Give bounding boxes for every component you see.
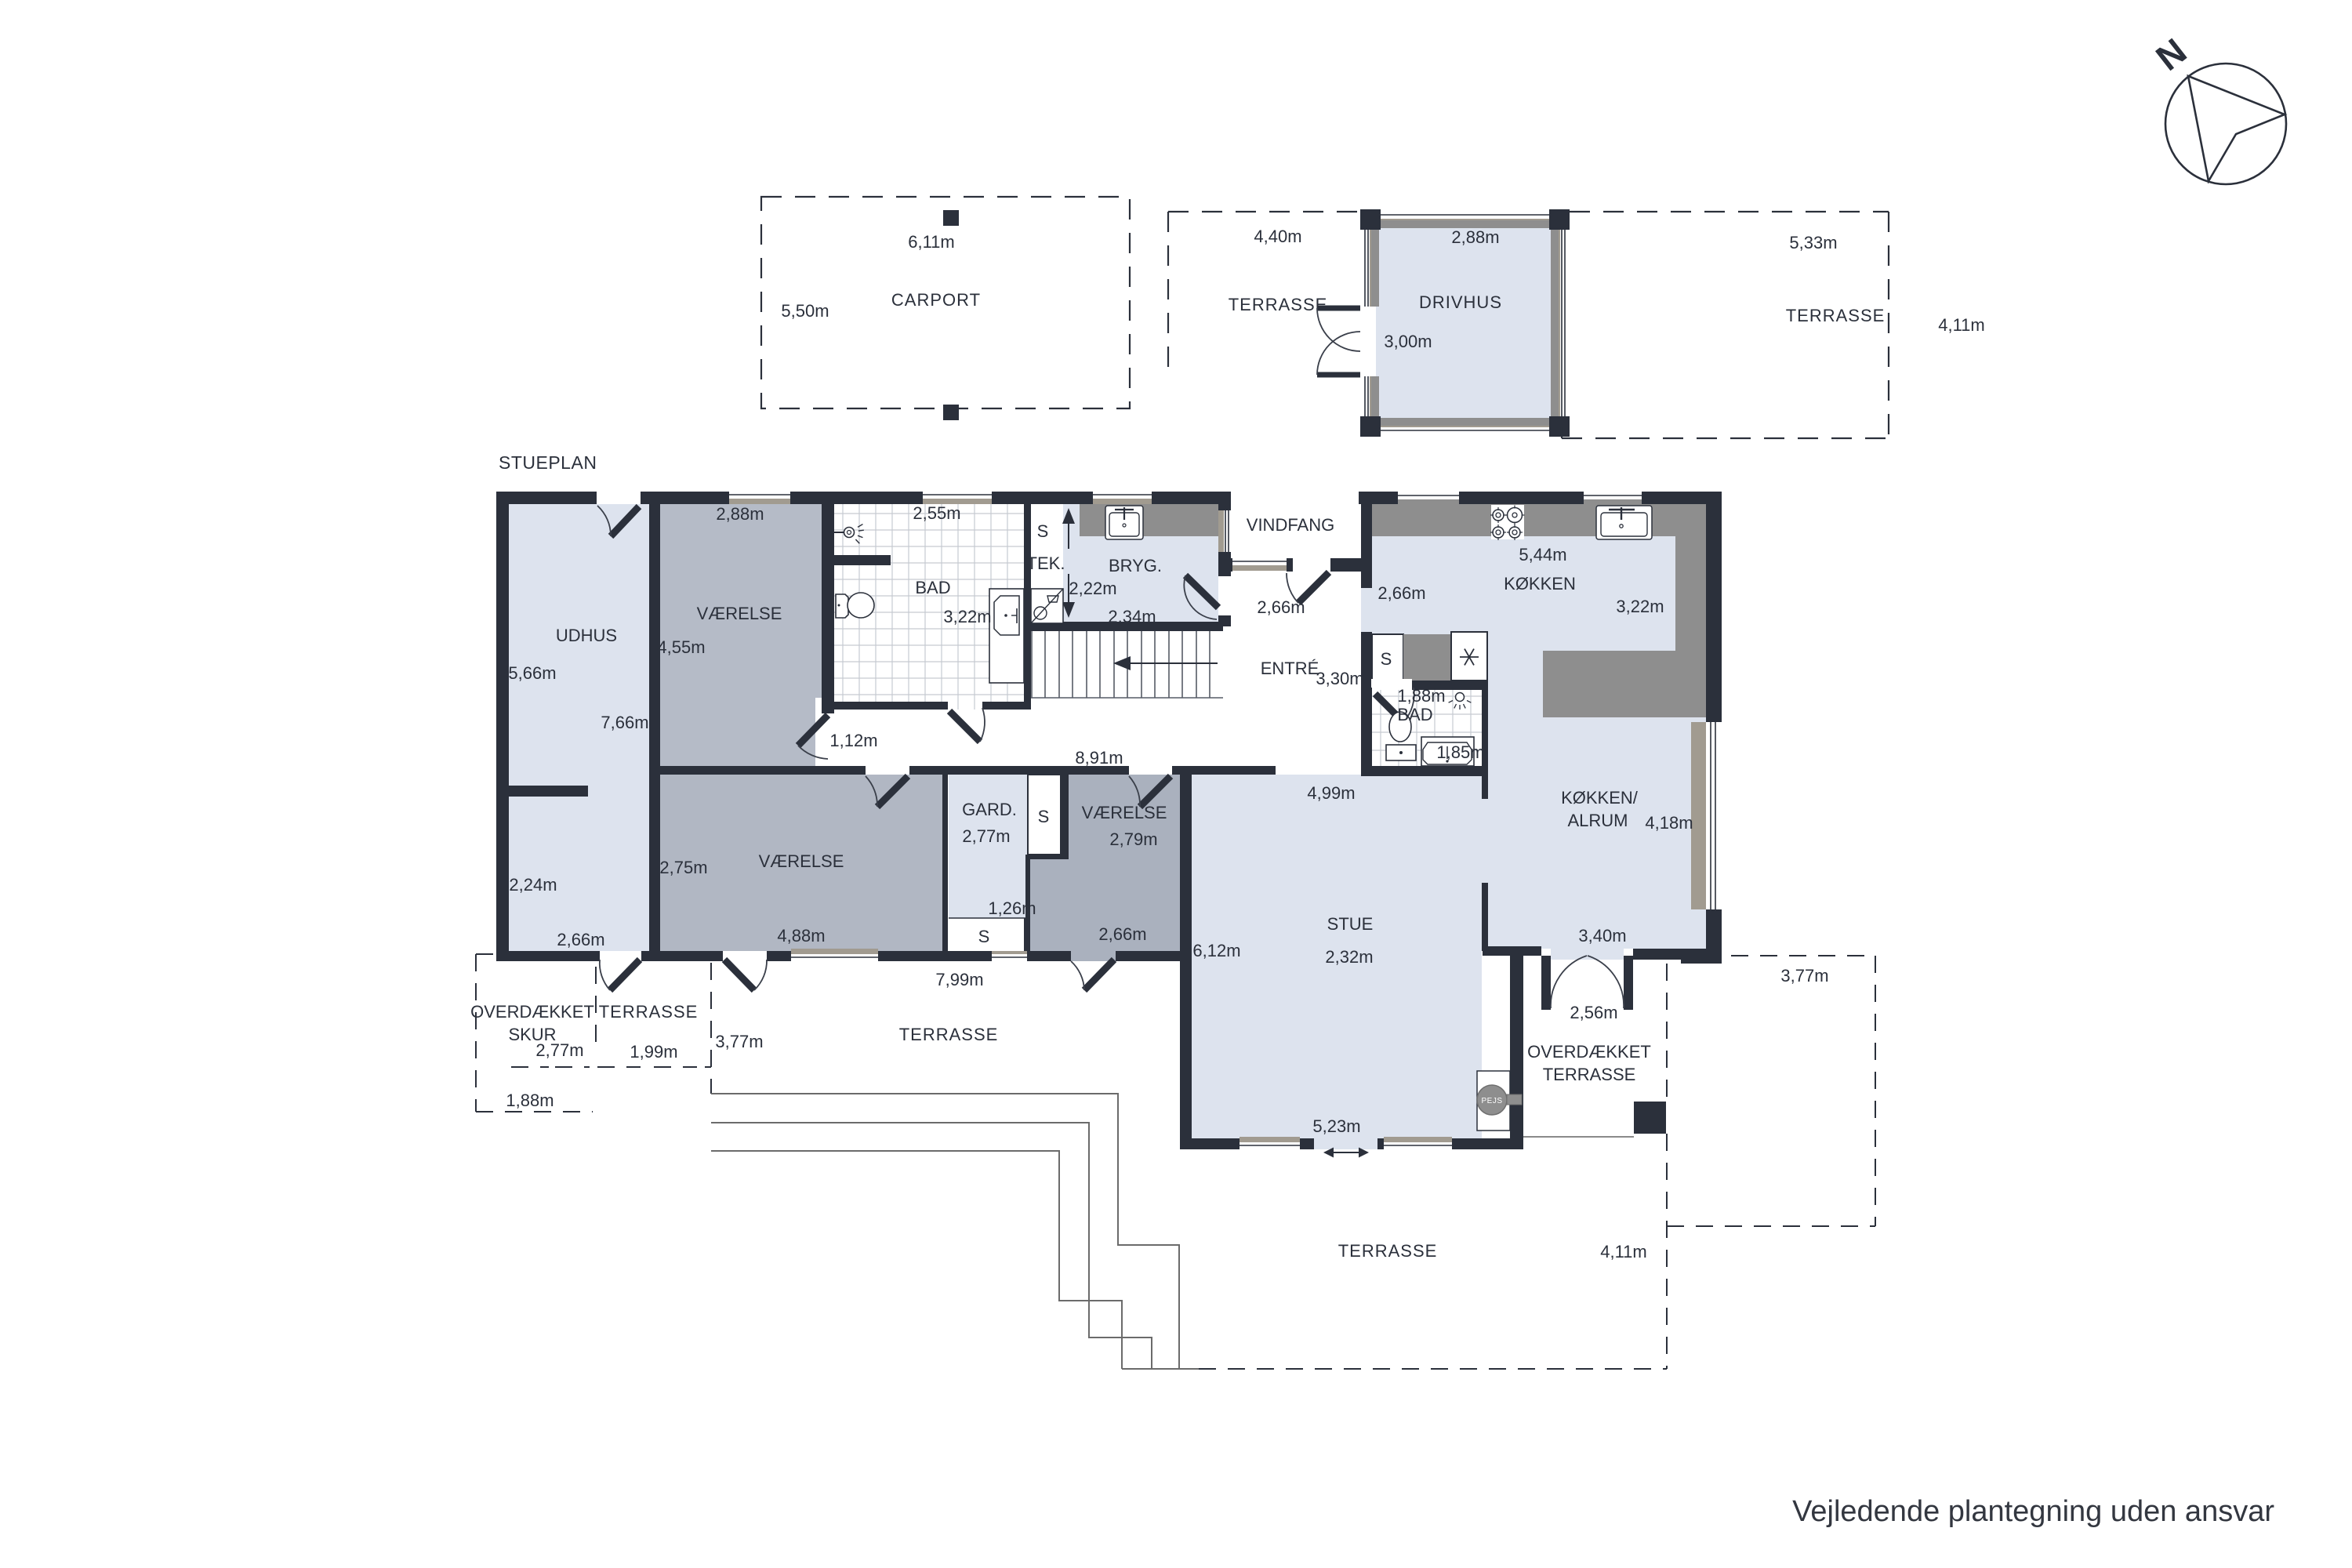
svg-text:TERRASSE: TERRASSE: [899, 1025, 999, 1044]
svg-text:Vejledende plantegning uden an: Vejledende plantegning uden ansvar: [1792, 1495, 2274, 1528]
svg-text:3,22m: 3,22m: [1616, 597, 1664, 616]
svg-text:1,88m: 1,88m: [506, 1091, 554, 1110]
svg-text:3,30m: 3,30m: [1316, 669, 1363, 688]
svg-text:4,11m: 4,11m: [1938, 315, 1985, 335]
svg-text:TERRASSE: TERRASSE: [1543, 1065, 1636, 1084]
svg-text:TERRASSE: TERRASSE: [599, 1002, 699, 1022]
svg-text:STUE: STUE: [1327, 914, 1374, 934]
svg-text:2,77m: 2,77m: [535, 1040, 583, 1060]
svg-text:ALRUM: ALRUM: [1567, 811, 1628, 830]
svg-text:1,85m: 1,85m: [1436, 742, 1484, 762]
svg-text:BAD: BAD: [915, 578, 950, 597]
svg-text:TEK.: TEK.: [1027, 554, 1065, 573]
svg-text:1,88m: 1,88m: [1397, 686, 1445, 706]
svg-text:5,50m: 5,50m: [781, 301, 829, 321]
svg-text:4,88m: 4,88m: [777, 926, 825, 946]
svg-text:5,23m: 5,23m: [1312, 1116, 1360, 1136]
svg-text:5,66m: 5,66m: [508, 663, 556, 683]
svg-text:1,99m: 1,99m: [630, 1042, 677, 1062]
svg-text:1,26m: 1,26m: [988, 898, 1036, 918]
svg-text:5,33m: 5,33m: [1789, 233, 1837, 252]
svg-text:2,88m: 2,88m: [1451, 227, 1499, 247]
svg-text:S: S: [1037, 521, 1049, 541]
svg-text:8,91m: 8,91m: [1075, 748, 1123, 768]
svg-text:S: S: [1381, 649, 1392, 669]
svg-text:TERRASSE: TERRASSE: [1786, 306, 1886, 325]
svg-text:1,12m: 1,12m: [829, 731, 877, 750]
svg-text:4,11m: 4,11m: [1600, 1242, 1647, 1261]
svg-text:2,66m: 2,66m: [1377, 583, 1425, 603]
svg-text:BRYG.: BRYG.: [1109, 556, 1162, 575]
svg-text:2,79m: 2,79m: [1109, 829, 1157, 849]
svg-text:TERRASSE: TERRASSE: [1338, 1241, 1438, 1261]
svg-text:2,88m: 2,88m: [716, 504, 764, 524]
svg-text:3,22m: 3,22m: [943, 607, 991, 626]
svg-text:GARD.: GARD.: [962, 800, 1017, 819]
svg-text:2,75m: 2,75m: [659, 858, 707, 877]
svg-text:VÆRELSE: VÆRELSE: [697, 604, 782, 623]
svg-text:2,32m: 2,32m: [1325, 947, 1373, 967]
svg-text:STUEPLAN: STUEPLAN: [499, 452, 597, 473]
svg-text:2,24m: 2,24m: [509, 875, 557, 895]
svg-text:4,99m: 4,99m: [1307, 783, 1355, 803]
svg-text:2,56m: 2,56m: [1570, 1003, 1617, 1022]
svg-text:S: S: [978, 927, 990, 946]
svg-text:5,44m: 5,44m: [1519, 545, 1566, 564]
svg-text:7,66m: 7,66m: [601, 713, 648, 732]
svg-text:VINDFANG: VINDFANG: [1247, 515, 1334, 535]
svg-text:VÆRELSE: VÆRELSE: [759, 851, 844, 871]
svg-text:3,77m: 3,77m: [1780, 966, 1828, 985]
svg-text:2,55m: 2,55m: [913, 503, 960, 523]
svg-text:PEJS: PEJS: [1481, 1097, 1502, 1105]
svg-text:2,77m: 2,77m: [962, 826, 1010, 846]
svg-text:VÆRELSE: VÆRELSE: [1082, 803, 1167, 822]
svg-text:S: S: [1038, 807, 1050, 826]
svg-text:3,40m: 3,40m: [1578, 926, 1626, 946]
svg-text:ENTRÉ: ENTRÉ: [1261, 659, 1319, 678]
svg-text:2,66m: 2,66m: [557, 930, 604, 949]
svg-text:6,12m: 6,12m: [1192, 941, 1240, 960]
svg-text:OVERDÆKKET: OVERDÆKKET: [1527, 1042, 1651, 1062]
svg-text:4,18m: 4,18m: [1645, 813, 1693, 833]
svg-text:BAD: BAD: [1397, 705, 1432, 724]
svg-text:KØKKEN/: KØKKEN/: [1561, 788, 1639, 808]
svg-text:3,77m: 3,77m: [715, 1032, 763, 1051]
svg-text:2,66m: 2,66m: [1257, 597, 1305, 617]
svg-text:OVERDÆKKET: OVERDÆKKET: [470, 1002, 594, 1022]
svg-text:DRIVHUS: DRIVHUS: [1419, 292, 1502, 312]
svg-text:TERRASSE: TERRASSE: [1229, 295, 1328, 314]
svg-text:UDHUS: UDHUS: [556, 626, 617, 645]
svg-text:4,55m: 4,55m: [657, 637, 705, 657]
svg-text:6,11m: 6,11m: [908, 232, 955, 252]
svg-text:7,99m: 7,99m: [935, 970, 983, 989]
svg-text:4,40m: 4,40m: [1254, 227, 1301, 246]
svg-text:CARPORT: CARPORT: [891, 290, 981, 310]
svg-text:2,22m: 2,22m: [1069, 579, 1116, 598]
svg-text:KØKKEN: KØKKEN: [1504, 574, 1576, 593]
svg-text:3,00m: 3,00m: [1384, 332, 1432, 351]
svg-text:2,66m: 2,66m: [1098, 924, 1146, 944]
svg-text:2,34m: 2,34m: [1108, 607, 1156, 626]
